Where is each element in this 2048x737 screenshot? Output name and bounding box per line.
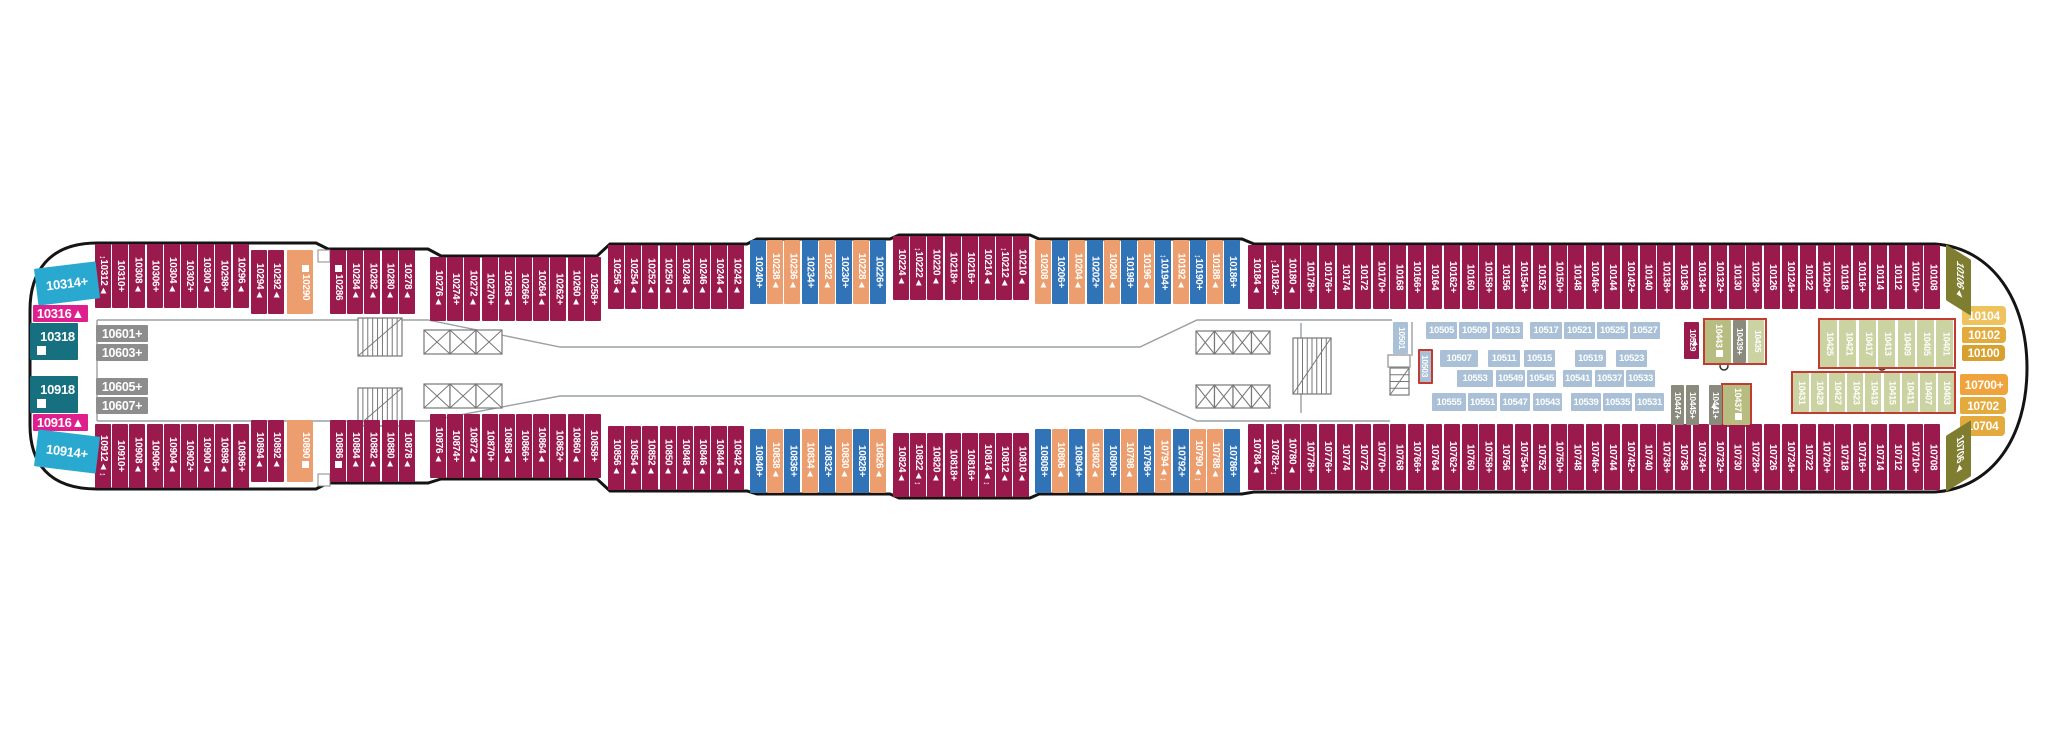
cabin-10427[interactable]: 10427 — [1829, 373, 1845, 412]
cabin-10431[interactable]: 10431 — [1793, 373, 1809, 412]
cabin-10702[interactable]: 10702 — [1960, 397, 2006, 414]
cabin-10114[interactable]: 10114 — [1871, 245, 1887, 309]
cabin-10310[interactable]: 10310+ — [112, 244, 128, 308]
cabin-10425[interactable]: 10425 — [1820, 320, 1837, 367]
cabin-10314[interactable]: 10314+ — [34, 261, 100, 305]
cabin-10700[interactable]: 10700+ — [1960, 374, 2008, 395]
cabin-10150[interactable]: 10150+ — [1551, 245, 1567, 309]
cabin-10908[interactable]: 10908▲ — [129, 424, 145, 488]
elevator-icon — [424, 330, 450, 354]
cabin-10880[interactable]: 10880▲ — [382, 420, 398, 482]
cabin-10876[interactable]: 10876▲ — [430, 414, 446, 478]
cabin-10818[interactable]: 10818+ — [945, 433, 961, 497]
cabin-10240[interactable]: 10240+ — [750, 240, 766, 304]
cabin-10182[interactable]: ↕10182+ — [1266, 245, 1282, 309]
cabin-10304[interactable]: 10304▲ — [164, 244, 180, 308]
cabin-10224[interactable]: 10224▲ — [893, 236, 909, 300]
deck-structure — [0, 0, 2048, 737]
cabin-10868[interactable]: 10868▲ — [499, 414, 515, 478]
cabin-10445[interactable]: 10445+ — [1686, 385, 1699, 425]
cabin-10770[interactable]: 10770+ — [1373, 424, 1389, 490]
cabin-10168[interactable]: 10168 — [1390, 245, 1406, 309]
cabin-10210[interactable]: 10210▲ — [1013, 236, 1029, 300]
cabin-10505[interactable]: 10505 — [1426, 322, 1457, 339]
cabin-10409[interactable]: 10409 — [1898, 320, 1915, 367]
cabin-10507[interactable]: 10507 — [1440, 350, 1478, 367]
cabin-10437[interactable]: 10437▲ — [1723, 385, 1750, 425]
cabin-10756[interactable]: 10756 — [1497, 424, 1513, 490]
cabin-10776[interactable]: 10776+ — [1319, 424, 1335, 490]
cabin-10515[interactable]: 10515 — [1524, 350, 1555, 367]
cabin-10220[interactable]: 10220▲ — [927, 236, 943, 300]
cabin-10830[interactable]: 10830▲ — [836, 429, 852, 493]
cabin-10800[interactable]: 10800+ — [1104, 429, 1120, 493]
cabin-10258[interactable]: 10258+ — [585, 257, 601, 321]
cabin-10198[interactable]: 10198+ — [1121, 240, 1137, 304]
cabin-10850[interactable]: 10850▲ — [660, 426, 676, 490]
cabin-10134[interactable]: 10134+ — [1693, 245, 1709, 309]
cabin-10308[interactable]: 10308▲ — [129, 244, 145, 308]
cabin-10230[interactable]: 10230+ — [836, 240, 852, 304]
service-area — [318, 250, 330, 262]
cabin-10202[interactable]: 10202+ — [1087, 240, 1103, 304]
cabin-10116[interactable]: 10116+ — [1853, 245, 1869, 309]
cabin-10778[interactable]: 10778+ — [1301, 424, 1317, 490]
cabin-10774[interactable]: 10774 — [1337, 424, 1353, 490]
cabin-10260[interactable]: 10260▲ — [568, 257, 584, 321]
cabin-10916[interactable]: 10916▲ — [33, 414, 88, 431]
cabin-10746[interactable]: 10746+ — [1586, 424, 1602, 490]
cabin-10242[interactable]: 10242▲ — [728, 245, 744, 309]
cabin-10234[interactable]: 10234+ — [802, 240, 818, 304]
elevator-icon — [450, 330, 476, 354]
cabin-10112[interactable]: 10112 — [1889, 245, 1905, 309]
cabin-10154[interactable]: 10154+ — [1515, 245, 1531, 309]
cabin-10306[interactable]: 10306+ — [147, 244, 163, 308]
cabin-10890[interactable]: 10890 — [287, 420, 313, 482]
cabin-10810[interactable]: 10810▲ — [1013, 433, 1029, 497]
cabin-10708[interactable]: 10708 — [1924, 424, 1940, 490]
cabin-10222[interactable]: ↕10222▲ — [910, 236, 926, 300]
cabin-10190[interactable]: ↕10190+ — [1190, 240, 1206, 304]
cabin-10443[interactable]: 10443▲ — [1705, 320, 1731, 363]
cabin-10724[interactable]: 10724+ — [1782, 424, 1798, 490]
cabin-10282[interactable]: 10282▲ — [364, 250, 380, 314]
cabin-10551[interactable]: 10551↔ — [1468, 393, 1497, 411]
cabin-10128[interactable]: 10128+ — [1746, 245, 1762, 309]
cabin-10535[interactable]: 10535↔ — [1603, 393, 1632, 411]
elevator-icon — [1215, 385, 1234, 408]
cabin-10898[interactable]: 10898▲ — [215, 424, 231, 488]
cabin-10174[interactable]: 10174 — [1337, 245, 1353, 309]
elevator-icon — [1252, 331, 1271, 354]
cabin-10736[interactable]: 10736 — [1675, 424, 1691, 490]
cabin-10541[interactable]: 10541↔ — [1563, 370, 1592, 387]
cabin-10136[interactable]: 10136 — [1675, 245, 1691, 309]
cabin-10872[interactable]: 10872▲ — [464, 414, 480, 478]
cabin-10519[interactable]: 10519 — [1575, 350, 1606, 367]
cabin-10884[interactable]: 10884▲ — [347, 420, 363, 482]
cabin-10158[interactable]: 10158+ — [1479, 245, 1495, 309]
cabin-10738[interactable]: 10738+ — [1657, 424, 1673, 490]
cabin-10262[interactable]: 10262+ — [550, 257, 566, 321]
cabin-10553[interactable]: 10553 — [1457, 370, 1493, 387]
cabin-10744[interactable]: 10744 — [1604, 424, 1620, 490]
cabin-10501[interactable]: 10501 — [1393, 322, 1408, 354]
cabin-10196[interactable]: 10196▲ — [1138, 240, 1154, 304]
cabin-10896[interactable]: 10896+ — [233, 424, 249, 488]
cabin-10866[interactable]: 10866+ — [516, 414, 532, 478]
cabin-10447[interactable]: 10447+ — [1671, 385, 1684, 425]
cabin-10854[interactable]: 10854▲ — [625, 426, 641, 490]
cabin-10294[interactable]: 10294▲ — [251, 250, 267, 314]
cabin-10439[interactable]: 10439+ — [1733, 320, 1746, 363]
cabin-10808[interactable]: 10808+ — [1035, 429, 1051, 493]
cabin-10184[interactable]: 10184▲ — [1248, 245, 1264, 309]
cabin-10180[interactable]: 10180▲ — [1284, 245, 1300, 309]
cabin-10140[interactable]: 10140 — [1640, 245, 1656, 309]
cabin-10102[interactable]: 10102 — [1962, 327, 2006, 343]
cabin-10130[interactable]: 10130 — [1729, 245, 1745, 309]
cabin-10918[interactable]: 10918 — [30, 376, 78, 413]
cabin-10900[interactable]: 10900▲ — [198, 424, 214, 488]
cabin-10766[interactable]: 10766+ — [1408, 424, 1424, 490]
cabin-10862[interactable]: 10862+ — [550, 414, 566, 478]
cabin-10555[interactable]: 10555 — [1432, 393, 1466, 411]
cabin-10276[interactable]: 10276▲ — [430, 257, 446, 321]
cabin-10786[interactable]: 10786+ — [1224, 429, 1240, 493]
elevator-icon — [1252, 385, 1271, 408]
cabin-10170[interactable]: 10170+ — [1373, 245, 1389, 309]
cabin-10290[interactable]: 10290 — [287, 250, 313, 314]
cabin-10864[interactable]: 10864▲ — [533, 414, 549, 478]
cabin-10132[interactable]: 10132+ — [1711, 245, 1727, 309]
cabin-10828[interactable]: 10828+ — [853, 429, 869, 493]
stairs-icon — [1293, 338, 1331, 394]
cabin-10894[interactable]: 10894▲ — [251, 420, 267, 482]
cabin-10268[interactable]: 10268▲ — [499, 257, 515, 321]
cabin-10798[interactable]: 10798▲ — [1121, 429, 1137, 493]
cabin-10716[interactable]: 10716+ — [1853, 424, 1869, 490]
cabin-10421[interactable]: 10421 — [1839, 320, 1856, 367]
cabin-10176[interactable]: 10176+ — [1319, 245, 1335, 309]
cabin-10768[interactable]: 10768 — [1390, 424, 1406, 490]
cabin-10539[interactable]: 10539 — [1571, 393, 1601, 411]
cabin-10250[interactable]: 10250▲ — [660, 245, 676, 309]
cabin-10814[interactable]: 10814▲↕ — [979, 433, 995, 497]
cabin-10860[interactable]: 10860▲ — [568, 414, 584, 478]
cabin-10537[interactable]: 10537 — [1595, 370, 1624, 387]
stairs-icon — [1390, 368, 1409, 395]
cabin-10748[interactable]: 10748 — [1568, 424, 1584, 490]
cabin-10118[interactable]: 10118 — [1835, 245, 1851, 309]
cabin-10110[interactable]: 10110+ — [1907, 245, 1923, 309]
cabin-10138[interactable]: 10138+ — [1657, 245, 1673, 309]
cabin-10730[interactable]: 10730 — [1729, 424, 1745, 490]
cabin-10252[interactable]: 10252▲ — [642, 245, 658, 309]
cabin-10728[interactable]: 10728+ — [1746, 424, 1762, 490]
cabin-10280[interactable]: 10280▲ — [382, 250, 398, 314]
cabin-10503[interactable]: 10503 — [1418, 349, 1433, 384]
cabin-10509[interactable]: 10509↔ — [1459, 322, 1490, 339]
cabin-10407[interactable]: 10407 — [1920, 373, 1936, 412]
cabin-10415[interactable]: 10415 — [1884, 373, 1900, 412]
cabin-10316[interactable]: 10316▲ — [33, 305, 88, 322]
cabin-10266[interactable]: 10266+ — [516, 257, 532, 321]
cabin-10401[interactable]: 10401 — [1936, 320, 1953, 367]
cabin-10820[interactable]: 10820▲ — [927, 433, 943, 497]
cabin-10156[interactable]: 10156 — [1497, 245, 1513, 309]
cabin-10824[interactable]: 10824▲ — [893, 433, 909, 497]
cabin-10212[interactable]: ↕10212▲ — [996, 236, 1012, 300]
cabin-10802[interactable]: 10802▲ — [1087, 429, 1103, 493]
cabin-10218[interactable]: 10218+ — [945, 236, 961, 300]
cabin-10804[interactable]: 10804+ — [1069, 429, 1085, 493]
cabin-10910[interactable]: 10910+ — [112, 424, 128, 488]
cabin-10904[interactable]: 10904▲ — [164, 424, 180, 488]
elevator-icon — [450, 384, 476, 408]
cabin-10527[interactable]: 10527 — [1630, 322, 1660, 339]
cabin-10732[interactable]: 10732+ — [1711, 424, 1727, 490]
cabin-10714[interactable]: 10714 — [1871, 424, 1887, 490]
cabin-10882[interactable]: 10882▲ — [364, 420, 380, 482]
cabin-10523[interactable]: 10523 — [1616, 350, 1647, 367]
cabin-10874[interactable]: 10874+ — [447, 414, 463, 478]
cabin-10842[interactable]: 10842▲ — [728, 426, 744, 490]
cabin-10423[interactable]: 10423 — [1847, 373, 1863, 412]
cabin-10812[interactable]: 10812▲ — [996, 433, 1012, 497]
cabin-10878[interactable]: 10878▲ — [399, 420, 415, 482]
cabin-10607[interactable]: 10607+ — [96, 397, 148, 414]
cabin-10832[interactable]: 10832+ — [819, 429, 835, 493]
cabin-10796[interactable]: 10796+ — [1138, 429, 1154, 493]
cabin-10216[interactable]: 10216+ — [962, 236, 978, 300]
cabin-10834[interactable]: 10834▲ — [802, 429, 818, 493]
cabin-10186[interactable]: 10186+ — [1224, 240, 1240, 304]
cabin-10806[interactable]: 10806▲ — [1052, 429, 1068, 493]
cabin-10126[interactable]: 10126 — [1764, 245, 1780, 309]
cabin-10208[interactable]: 10208▲ — [1035, 240, 1051, 304]
cabin-10318[interactable]: 10318 — [30, 323, 78, 360]
cabin-10405[interactable]: 10405 — [1917, 320, 1934, 367]
cabin-10284[interactable]: 10284▲ — [347, 250, 363, 314]
elevator-icon — [424, 384, 450, 408]
cabin-10726[interactable]: 10726 — [1764, 424, 1780, 490]
cabin-10256[interactable]: 10256▲ — [608, 245, 624, 309]
cabin-10142[interactable]: 10142+ — [1622, 245, 1638, 309]
cabin-10788[interactable]: 10788▲ — [1207, 429, 1223, 493]
stairs-icon — [358, 318, 402, 356]
cabin-10244[interactable]: 10244▲ — [711, 245, 727, 309]
cabin-10836[interactable]: 10836+ — [784, 429, 800, 493]
cabin-10214[interactable]: 10214▲ — [979, 236, 995, 300]
cabin-10906[interactable]: 10906+ — [147, 424, 163, 488]
cabin-10792[interactable]: 10792+ — [1173, 429, 1189, 493]
cabin-10270[interactable]: 10270+ — [482, 257, 498, 321]
cabin-10204[interactable]: 10204▲ — [1069, 240, 1085, 304]
cabin-10146[interactable]: 10146+ — [1586, 245, 1602, 309]
cabin-10302[interactable]: 10302+ — [181, 244, 197, 308]
cabin-10160[interactable]: 10160 — [1462, 245, 1478, 309]
cabin-10200[interactable]: 10200▲ — [1104, 240, 1120, 304]
cabin-10848[interactable]: 10848▲ — [677, 426, 693, 490]
cabin-10826[interactable]: 10826▲ — [870, 429, 886, 493]
cabin-10124[interactable]: 10124+ — [1782, 245, 1798, 309]
cabin-10914[interactable]: 10914+ — [34, 429, 100, 473]
cabin-10742[interactable]: 10742+ — [1622, 424, 1638, 490]
cabin-10172[interactable]: 10172 — [1355, 245, 1371, 309]
cabin-10192[interactable]: 10192▲ — [1173, 240, 1189, 304]
cabin-10296[interactable]: 10296▲ — [233, 244, 249, 308]
cabin-10838[interactable]: 10838▲ — [767, 429, 783, 493]
cabin-10722[interactable]: 10722 — [1800, 424, 1816, 490]
cabin-10525[interactable]: 10525↔ — [1597, 322, 1628, 339]
cabin-10870[interactable]: 10870+ — [482, 414, 498, 478]
cabin-10292[interactable]: 10292▲ — [268, 250, 284, 314]
service-area — [318, 474, 330, 486]
cabin-10517[interactable]: 10517↔ — [1530, 322, 1562, 339]
cabin-10772[interactable]: 10772 — [1355, 424, 1371, 490]
cabin-10603[interactable]: 10603+ — [96, 344, 148, 361]
cabin-10511[interactable]: 10511 — [1488, 350, 1520, 367]
cabin-10178[interactable]: 10178+ — [1301, 245, 1317, 309]
cabin-10206[interactable]: 10206+ — [1052, 240, 1068, 304]
cabin-10166[interactable]: 10166+ — [1408, 245, 1424, 309]
cabin-10429[interactable]: 10429 — [1811, 373, 1827, 412]
cabin-10740[interactable]: 10740 — [1640, 424, 1656, 490]
cabin-10754[interactable]: 10754+ — [1515, 424, 1531, 490]
cabin-10274[interactable]: 10274+ — [447, 257, 463, 321]
cabin-10782[interactable]: 10782+↕ — [1266, 424, 1282, 490]
cabin-10264[interactable]: 10264▲ — [533, 257, 549, 321]
cabin-10226[interactable]: 10226+ — [870, 240, 886, 304]
cabin-10545[interactable]: 10545 — [1527, 370, 1556, 387]
cabin-10100[interactable]: 10100 — [1962, 345, 2005, 361]
cabin-10758[interactable]: 10758+ — [1479, 424, 1495, 490]
cabin-10892[interactable]: 10892▲ — [268, 420, 284, 482]
elevator-icon — [476, 330, 502, 354]
cabin-10750[interactable]: 10750+ — [1551, 424, 1567, 490]
cabin-10120[interactable]: 10120+ — [1818, 245, 1834, 309]
cabin-10549[interactable]: 10549↔ — [1496, 370, 1525, 387]
cabin-10417[interactable]: 10417 — [1859, 320, 1876, 367]
cabin-10152[interactable]: 10152 — [1533, 245, 1549, 309]
cabin-10254[interactable]: 10254▲ — [625, 245, 641, 309]
cabin-10902[interactable]: 10902+ — [181, 424, 197, 488]
cabin-10236[interactable]: 10236▲ — [784, 240, 800, 304]
cabin-10286[interactable]: 10286 — [330, 250, 346, 314]
elevator-icon — [1233, 385, 1252, 408]
cabin-10846[interactable]: 10846▲ — [694, 426, 710, 490]
cabin-10762[interactable]: 10762+ — [1444, 424, 1460, 490]
cabin-10144[interactable]: 10144 — [1604, 245, 1620, 309]
cabin-10752[interactable]: 10752 — [1533, 424, 1549, 490]
cabin-10712[interactable]: 10712 — [1889, 424, 1905, 490]
cabin-10718[interactable]: 10718 — [1835, 424, 1851, 490]
cabin-10856[interactable]: 10856▲ — [608, 426, 624, 490]
cabin-10194[interactable]: ↕10194+ — [1155, 240, 1171, 304]
cabin-10780[interactable]: 10780▲ — [1284, 424, 1300, 490]
cabin-10531[interactable]: 10531 — [1635, 393, 1664, 411]
cabin-10411[interactable]: 10411 — [1902, 373, 1918, 412]
cabin-10513[interactable]: 10513 — [1492, 322, 1523, 339]
cabin-10533[interactable]: 10533 — [1626, 370, 1655, 387]
cabin-10248[interactable]: 10248▲ — [677, 245, 693, 309]
cabin-10403[interactable]: 10403 — [1938, 373, 1954, 412]
elevator-icon — [1196, 385, 1215, 408]
cabin-10228[interactable]: 10228▲ — [853, 240, 869, 304]
elevator-icon — [1215, 331, 1234, 354]
cabin-10278[interactable]: 10278▲ — [399, 250, 415, 314]
cabin-10272[interactable]: 10272▲ — [464, 257, 480, 321]
cabin-10601[interactable]: 10601+ — [96, 325, 148, 342]
cabin-10108[interactable]: 10108 — [1924, 245, 1940, 309]
cabin-10298[interactable]: 10298+ — [215, 244, 231, 308]
cabin-10164[interactable]: 10164 — [1426, 245, 1442, 309]
cabin-10148[interactable]: 10148 — [1568, 245, 1584, 309]
cabin-10844[interactable]: 10844▲ — [711, 426, 727, 490]
cabin-10720[interactable]: 10720+ — [1818, 424, 1834, 490]
cabin-10790[interactable]: 10790▲↕ — [1190, 429, 1206, 493]
cabin-10886[interactable]: 10886 — [330, 420, 346, 482]
elevator-icon — [476, 384, 502, 408]
cabin-10852[interactable]: 10852▲ — [642, 426, 658, 490]
cabin-10760[interactable]: 10760 — [1462, 424, 1478, 490]
deck-plan: ↕10312▲10310+10308▲10306+10304▲10302+103… — [0, 0, 2048, 737]
cabin-10238[interactable]: 10238▲ — [767, 240, 783, 304]
cabin-10547[interactable]: 10547 — [1500, 393, 1530, 411]
cabin-10710[interactable]: 10710+ — [1907, 424, 1923, 490]
cabin-10822[interactable]: 10822▲↕ — [910, 433, 926, 497]
cabin-10435[interactable]: 10435 — [1748, 320, 1764, 363]
cabin-10784[interactable]: 10784▲ — [1248, 424, 1264, 490]
cabin-10794[interactable]: 10794▲↕ — [1155, 429, 1171, 493]
cabin-10246[interactable]: 10246▲ — [694, 245, 710, 309]
cabin-10300[interactable]: 10300▲ — [198, 244, 214, 308]
cabin-10734[interactable]: 10734+ — [1693, 424, 1709, 490]
cabin-10840[interactable]: 10840+ — [750, 429, 766, 493]
cabin-10858[interactable]: 10858+ — [585, 414, 601, 478]
cabin-10543[interactable]: 10543↔ — [1533, 393, 1562, 411]
cabin-10413[interactable]: 10413 — [1878, 320, 1895, 367]
cabin-10162[interactable]: 10162+ — [1444, 245, 1460, 309]
cabin-10605[interactable]: 10605+ — [96, 378, 148, 395]
cabin-10188[interactable]: 10188▲ — [1207, 240, 1223, 304]
cabin-10232[interactable]: 10232▲ — [819, 240, 835, 304]
cabin-10122[interactable]: 10122 — [1800, 245, 1816, 309]
cabin-10419[interactable]: 10419 — [1865, 373, 1881, 412]
cabin-10764[interactable]: 10764 — [1426, 424, 1442, 490]
cabin-10816[interactable]: 10816+ — [962, 433, 978, 497]
elevator-icon — [1233, 331, 1252, 354]
cabin-10521[interactable]: 10521 — [1564, 322, 1595, 339]
elevator-icon — [1196, 331, 1215, 354]
